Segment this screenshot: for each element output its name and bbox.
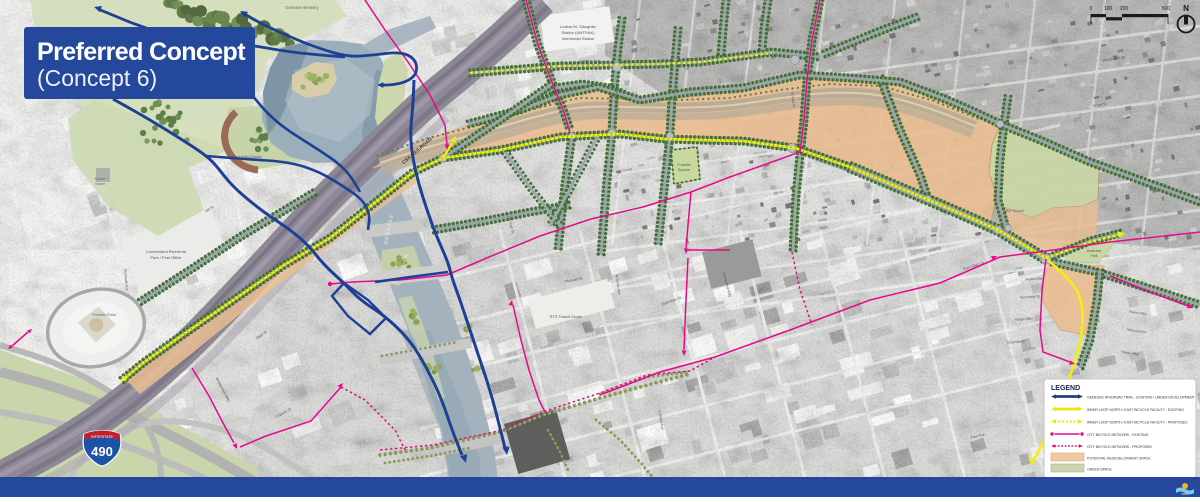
svg-text:INTERSTATE: INTERSTATE xyxy=(91,435,113,439)
svg-text:200: 200 xyxy=(1120,6,1129,12)
svg-text:Genesee Brewery: Genesee Brewery xyxy=(285,5,319,10)
svg-text:ROC: ROC xyxy=(1182,492,1190,496)
svg-text:(Concept 6): (Concept 6) xyxy=(37,65,157,91)
svg-text:500: 500 xyxy=(1162,6,1171,12)
svg-text:GREEN SPACE: GREEN SPACE xyxy=(1087,468,1112,472)
svg-text:CITY BICYCLE NETWORK - EXISTIN: CITY BICYCLE NETWORK - EXISTING xyxy=(1087,433,1149,437)
svg-text:0: 0 xyxy=(1090,6,1093,12)
svg-text:Frontier Field: Frontier Field xyxy=(92,312,116,317)
svg-text:POTENTIAL REDEVELOPMENT SPACE: POTENTIAL REDEVELOPMENT SPACE xyxy=(1087,457,1151,461)
svg-text:LEGEND: LEGEND xyxy=(1051,385,1080,392)
svg-text:WCF School: WCF School xyxy=(1004,209,1023,213)
svg-text:Central Ave: Central Ave xyxy=(580,59,600,64)
svg-text:490: 490 xyxy=(91,444,113,459)
svg-text:Preferred Concept: Preferred Concept xyxy=(37,38,246,66)
svg-text:High Falls District: High Falls District xyxy=(232,155,262,159)
svg-text:Square: Square xyxy=(678,168,690,172)
svg-text:Ludlow M. Slaughter: Ludlow M. Slaughter xyxy=(560,24,597,29)
svg-text:Franklin: Franklin xyxy=(677,163,691,167)
svg-text:RTS Transit Center: RTS Transit Center xyxy=(550,315,583,319)
svg-text:Anderson: Anderson xyxy=(1087,249,1102,253)
svg-text:Park / Post Office: Park / Post Office xyxy=(150,255,182,260)
svg-text:Cumberland Riverfront: Cumberland Riverfront xyxy=(146,249,187,254)
svg-text:INNER LOOP NORTH / EAST BICYCL: INNER LOOP NORTH / EAST BICYCLE FACILITY… xyxy=(1087,408,1184,412)
svg-text:Kodak: Kodak xyxy=(95,177,106,181)
svg-text:Intermodal Station: Intermodal Station xyxy=(562,36,594,41)
svg-text:Park: Park xyxy=(1091,254,1098,258)
svg-text:INNER LOOP NORTH / EAST BICYCL: INNER LOOP NORTH / EAST BICYCLE FACILITY… xyxy=(1087,421,1188,425)
svg-text:Tower: Tower xyxy=(95,182,106,186)
svg-text:N: N xyxy=(1183,4,1189,13)
svg-text:GENESEE RIVERWAY TRAIL - EXIST: GENESEE RIVERWAY TRAIL - EXISTING / UNDE… xyxy=(1087,396,1196,400)
svg-text:Station (AMTRAK): Station (AMTRAK) xyxy=(562,30,596,35)
svg-text:CITY BICYCLE NETWORK - PROPOSE: CITY BICYCLE NETWORK - PROPOSED xyxy=(1087,445,1152,449)
svg-text:100: 100 xyxy=(1104,6,1113,12)
